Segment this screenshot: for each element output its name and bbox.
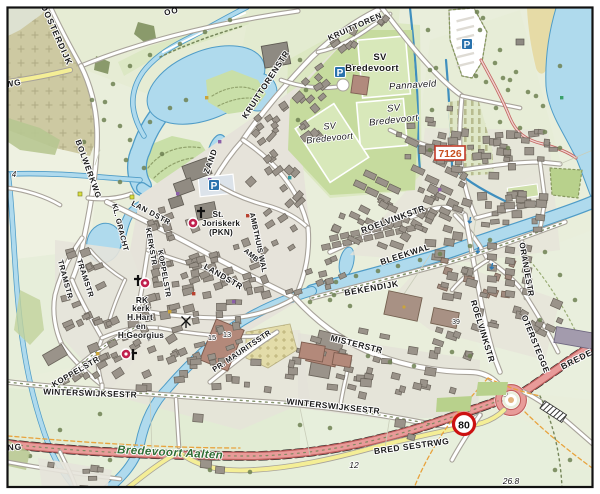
svg-text:Joriskerk: Joriskerk [202,219,240,228]
svg-text:7126: 7126 [438,148,462,160]
svg-text:NG: NG [7,442,22,453]
svg-text:P: P [464,40,471,51]
svg-text:SV: SV [373,52,387,63]
svg-text:Bredevoort: Bredevoort [345,63,399,74]
svg-text:SV: SV [323,120,337,131]
svg-text:H.Hart: H.Hart [127,313,153,322]
svg-text:SV: SV [387,102,403,114]
svg-text:kerk: kerk [132,304,150,313]
svg-text:(PKN): (PKN) [209,228,233,237]
svg-text:15: 15 [208,333,216,342]
svg-text:80: 80 [458,420,470,432]
svg-text:P: P [211,181,218,192]
svg-text:39: 39 [452,319,460,326]
svg-text:4: 4 [12,170,17,179]
svg-text:26.8: 26.8 [502,476,520,486]
svg-text:St.: St. [212,210,223,219]
svg-text:12: 12 [349,460,359,470]
svg-text:13: 13 [223,330,231,339]
svg-text:en: en [136,322,146,331]
svg-text:P: P [337,68,344,79]
svg-text:H.Georgius: H.Georgius [118,331,164,340]
